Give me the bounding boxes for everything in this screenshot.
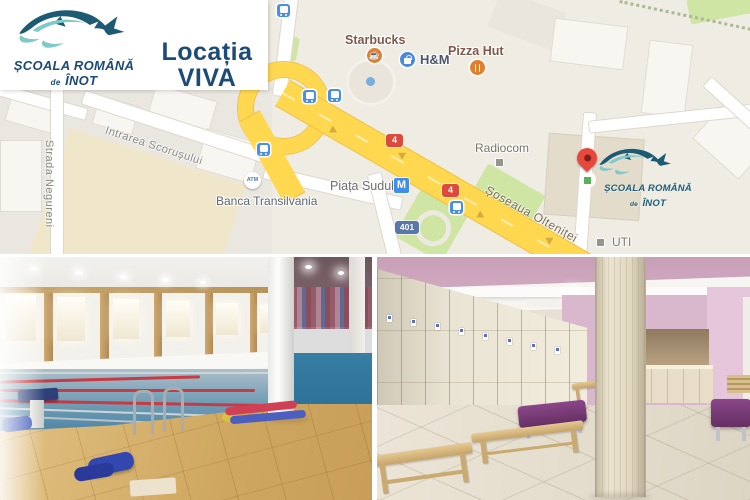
poi-label-hm[interactable]: H&M <box>420 52 450 67</box>
poi-label-starbucks[interactable]: Starbucks <box>345 33 405 47</box>
bag-body <box>404 58 411 64</box>
location-title-line1: Locația <box>148 38 266 67</box>
purple-bench <box>711 399 750 445</box>
bus-stop-icon[interactable] <box>257 143 270 156</box>
floor-mat <box>129 477 176 496</box>
ceiling-light <box>338 271 344 275</box>
plaza-circle <box>346 58 396 106</box>
dolphin-logo-icon <box>14 4 126 58</box>
wall-column <box>250 293 257 355</box>
destination-square <box>584 177 591 184</box>
locker-number-label <box>483 333 488 340</box>
street-label-strada-negureni: Strada Negureni <box>43 140 55 228</box>
bench-leg <box>716 427 720 441</box>
pool-ladder <box>133 390 154 435</box>
traffic-arrow <box>476 211 486 221</box>
pool-photo <box>0 257 372 500</box>
coffee-cup-icon[interactable]: ☕ <box>367 48 382 63</box>
page: Intrarea Scorușului Strada Negureni Șose… <box>0 0 750 500</box>
location-map[interactable]: Intrarea Scorușului Strada Negureni Șose… <box>0 0 750 254</box>
fork-glyph <box>475 64 477 72</box>
fountain <box>366 77 375 86</box>
pillar-grain <box>596 257 646 497</box>
center-pillar <box>595 257 646 497</box>
wall-column <box>100 293 109 367</box>
atm-icon[interactable]: ATM <box>244 172 261 189</box>
map-logo-name-line2: de ÎNOT <box>594 193 702 211</box>
metro-station-label[interactable]: Piața Sudului <box>330 179 404 193</box>
wall-column <box>44 293 53 371</box>
locker-number-label <box>555 347 560 354</box>
location-title-line2: VIVA <box>148 64 266 93</box>
window-panel <box>57 297 85 341</box>
bench-stretcher <box>484 441 576 455</box>
bench-stretcher <box>384 469 468 485</box>
knife-glyph <box>479 64 481 72</box>
traffic-arrow <box>329 126 339 136</box>
locker-number-label <box>459 328 464 335</box>
bus-stop-icon[interactable] <box>450 201 463 214</box>
counter-cabinets <box>635 369 713 403</box>
route-4-badge: 4 <box>442 184 459 197</box>
building <box>550 18 629 71</box>
poi-label-banca-transilvania[interactable]: Banca Transilvania <box>216 194 317 208</box>
locker-number-label <box>435 323 440 330</box>
slat-bench <box>727 375 750 393</box>
wall-column <box>205 293 213 359</box>
branding-card: ȘCOALA ROMÂNĂ de ÎNOT Locația VIVA <box>0 0 268 90</box>
ceiling-light <box>75 271 83 275</box>
poi-label-uti[interactable]: UTI <box>612 235 631 249</box>
bench-leg <box>742 427 746 441</box>
locker-number-label <box>531 343 536 350</box>
locker-number-label <box>387 315 392 322</box>
window-panel <box>216 303 238 335</box>
pool-ladder <box>163 387 184 432</box>
ceiling-light <box>305 265 312 269</box>
bus-stop-icon[interactable] <box>303 90 316 103</box>
ceiling-light <box>120 275 127 279</box>
poi-square-marker[interactable] <box>495 158 504 167</box>
bus-stop-icon[interactable] <box>277 4 290 17</box>
window-panel <box>113 299 139 339</box>
poi-label-radiocom[interactable]: Radiocom <box>475 141 529 155</box>
school-name-line2: de ÎNOT <box>0 72 148 90</box>
poi-label-pizza-hut[interactable]: Pizza Hut <box>448 44 504 58</box>
restaurant-icon[interactable] <box>470 60 485 75</box>
dolphin-logo-icon <box>596 144 672 182</box>
coffee-glyph: ☕ <box>367 48 382 63</box>
locker-number-label <box>411 319 416 326</box>
metro-icon[interactable]: M <box>394 178 409 193</box>
wall-column <box>154 293 162 363</box>
bus-stop-icon[interactable] <box>328 89 341 102</box>
photo-vignette <box>0 257 45 500</box>
route-4-badge: 4 <box>386 134 403 147</box>
poi-square-marker[interactable] <box>596 238 605 247</box>
window-panel <box>166 301 190 337</box>
ceiling-light <box>200 281 206 284</box>
route-401-badge: 401 <box>395 221 419 234</box>
school-name-line1: ȘCOALA ROMÂNĂ <box>0 58 148 73</box>
locker-room-photo <box>377 257 750 500</box>
pool-pillar <box>268 257 294 417</box>
building <box>0 140 42 212</box>
bench-cushion <box>711 399 750 427</box>
building <box>641 40 694 119</box>
shopping-bag-icon[interactable] <box>400 52 415 67</box>
pillar-shadow <box>589 493 651 500</box>
counter-alcove <box>639 329 709 369</box>
locker-number-label <box>507 338 512 345</box>
ceiling-light <box>162 278 169 282</box>
far-pillar <box>349 257 365 353</box>
